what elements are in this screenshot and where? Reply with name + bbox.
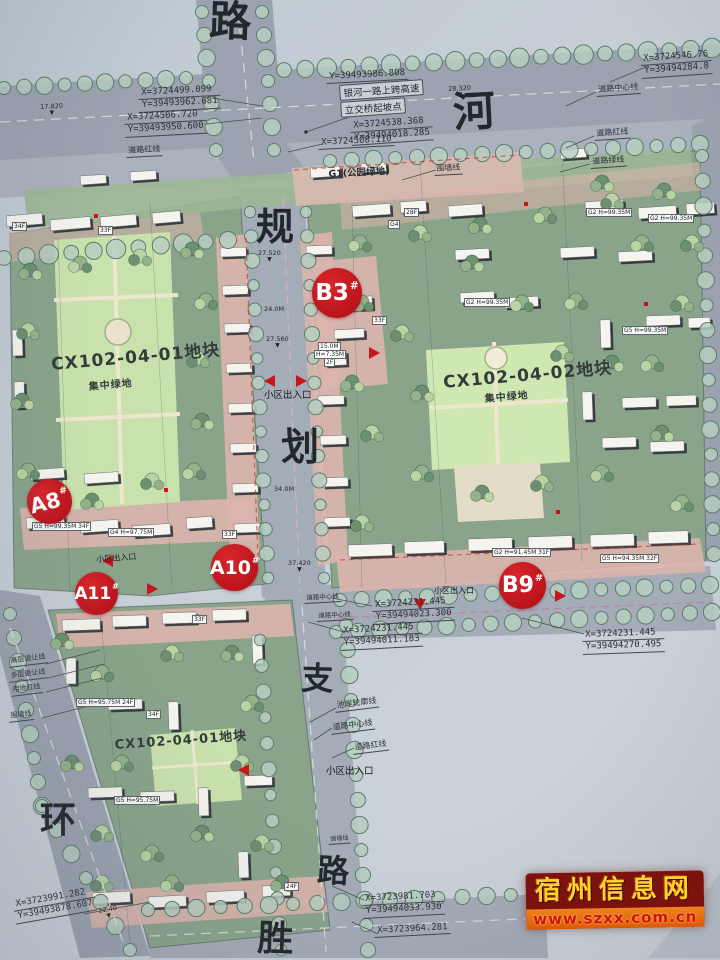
dimension-27560: 27.560▼ [266, 336, 289, 349]
dim-arrow-icon: ▼ [49, 110, 54, 117]
road-greenline-label: 道路绿线 [590, 153, 627, 168]
watermark-site-name: 宿州信息网 [535, 875, 696, 908]
road-centerline-label-3: 道路中心线 [316, 608, 353, 622]
bridge-note-line2: 立交桥起坡点 [340, 97, 406, 117]
building-label: 24F [284, 882, 299, 891]
building-label: 33F [222, 530, 237, 539]
road-redline-label-2: 道路红线 [126, 143, 163, 158]
dim-arrow-icon: ▼ [457, 92, 462, 99]
coord-bottom-1: X=3723981.703Y=39494033.930 [362, 890, 445, 919]
road-char-sheng: 胜 [257, 920, 294, 957]
road-char-lu-bottom: 路 [316, 854, 350, 888]
watermark-url: www.szxx.com.cn [526, 906, 704, 929]
plot-marker-a11: A11# [75, 572, 118, 615]
plot-marker-b9: B9# [499, 562, 546, 609]
entrance-label-center: 小区出入口 [264, 387, 312, 401]
road-char-gui: 规 [256, 208, 294, 246]
entrance-label-b9: 小区出入口 [434, 585, 474, 596]
coord-topright: X=3724546.76Y=39494284.8 [640, 49, 713, 78]
dim-arrow-icon: ▼ [275, 343, 280, 349]
building-label: G4 [388, 220, 400, 229]
building-label: G5 H=99.35M [622, 326, 668, 335]
road-centerline-label-2: 道路中心线 [304, 590, 341, 604]
dim-arrow-icon: ▼ [106, 913, 112, 920]
plot-marker-b3: B3# [312, 268, 362, 318]
dimension-17820: 17.820▼ [40, 103, 63, 117]
building-label: 34F [146, 710, 161, 719]
building-label: G5 H=94.35M 32F [600, 554, 659, 563]
building-label: G2 H=99.35M [586, 208, 632, 217]
building-label: G2 H=91.45M 31F [492, 548, 551, 557]
road-char-lu-top: 路 [209, 0, 252, 43]
coord-junction-2: X=3724231.445Y=39494011.183 [340, 622, 423, 651]
road-char-hua: 划 [281, 428, 319, 466]
road-char-huan: 环 [40, 802, 76, 838]
building-label: 34F [12, 222, 27, 231]
coord-bottomright: X=3724231.445Y=39494270.495 [582, 627, 665, 654]
building-label: 33F [372, 316, 387, 325]
bridge-note: 银河一路上跨高速 立交桥起坡点 [339, 79, 425, 119]
dimension-28320: 28.320▼ [448, 85, 471, 99]
entrance-label-south: 小区出入口 [326, 763, 374, 777]
site-plan-photo: 路 河 规 划 支 路 环 胜 CX102-04-01地块 集中绿地 CX102… [0, 0, 720, 960]
dimension-37420: 37.420▼ [288, 560, 311, 573]
building-label: 28F [404, 208, 419, 217]
coord-topleft-2: X=3724506.720Y=39493950.600 [124, 109, 207, 138]
dim-arrow-icon: ▼ [267, 257, 272, 263]
building-label: G5 H=95.75M [114, 796, 160, 805]
dim-arrow-icon: ▼ [297, 567, 302, 573]
road-char-zhi: 支 [301, 662, 334, 695]
wall-line-label-top: 围墙线 [434, 162, 463, 176]
dimension-27520: 27.520▼ [258, 250, 281, 263]
dimension-24m: 24.0M [264, 306, 284, 313]
building-label: G2 H=99.35M [648, 214, 694, 223]
watermark: 宿州信息网 www.szxx.com.cn [526, 870, 705, 929]
building-label: G4 H=97.75M [108, 528, 154, 537]
building-label: 33F [98, 226, 113, 235]
building-label: 33F [192, 615, 207, 624]
coord-junction-1: X=3724231.445Y=39494023.300 [372, 596, 455, 625]
wall-line-label-south: 围墙线 [328, 832, 351, 845]
building-label: G2 H=99.35M [464, 298, 510, 307]
plot-marker-a10: A10# [211, 544, 258, 591]
coord-topleft-1: X=3724499.099Y=39493962.681 [138, 84, 221, 113]
building-label: G5 H=95.75M 24F [76, 698, 135, 707]
building-label: G5 H=99.35M 34F [32, 522, 91, 531]
dimension-34m: 34.0M [274, 486, 294, 493]
road-redline-label-1: 道路红线 [594, 125, 631, 140]
building-label: 2F [324, 358, 335, 367]
